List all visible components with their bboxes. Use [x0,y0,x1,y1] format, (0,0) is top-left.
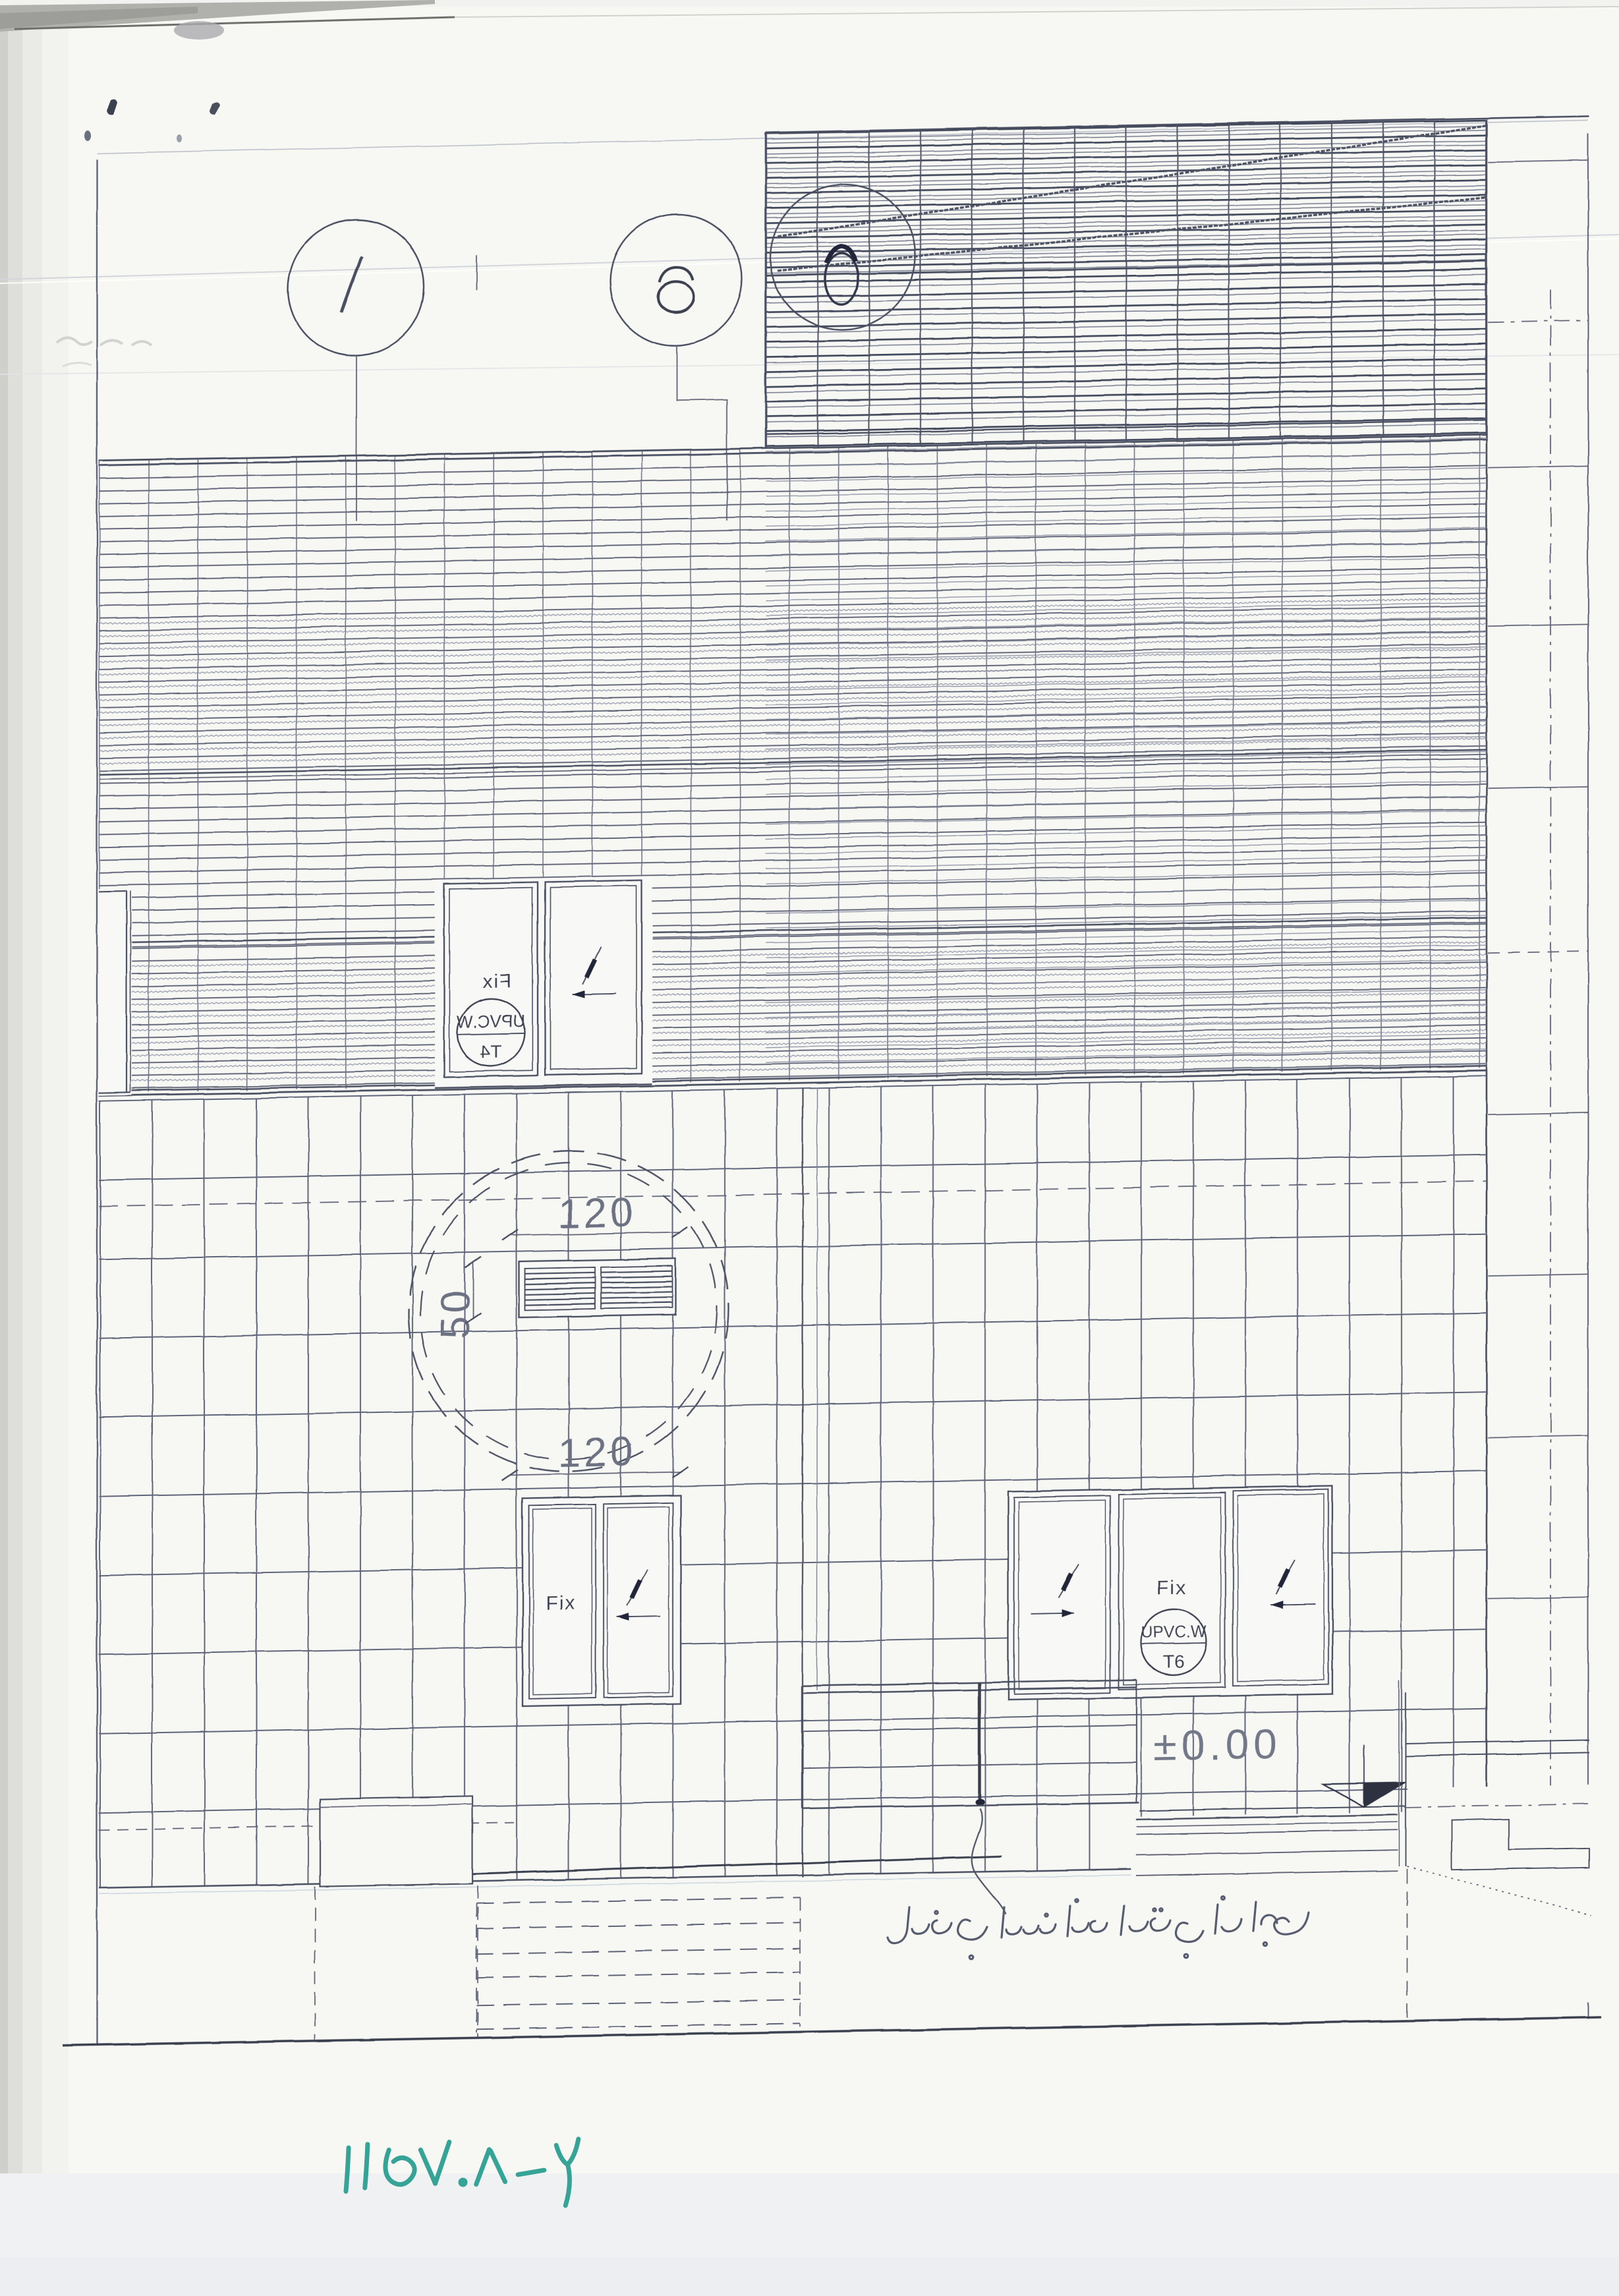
svg-text:±0.00: ±0.00 [1154,1720,1282,1770]
svg-text:Fix: Fix [546,1593,576,1615]
svg-text:UPVC.W: UPVC.W [1141,1622,1207,1642]
svg-text:Fix: Fix [1156,1577,1187,1599]
svg-text:T4: T4 [480,1041,502,1062]
svg-text:T6: T6 [1163,1651,1185,1673]
svg-text:UPVC.W: UPVC.W [457,1011,525,1032]
svg-text:Fix: Fix [482,970,512,992]
svg-text:120: 120 [558,1429,636,1476]
svg-text:50: 50 [433,1287,478,1340]
svg-text:120: 120 [558,1190,636,1237]
